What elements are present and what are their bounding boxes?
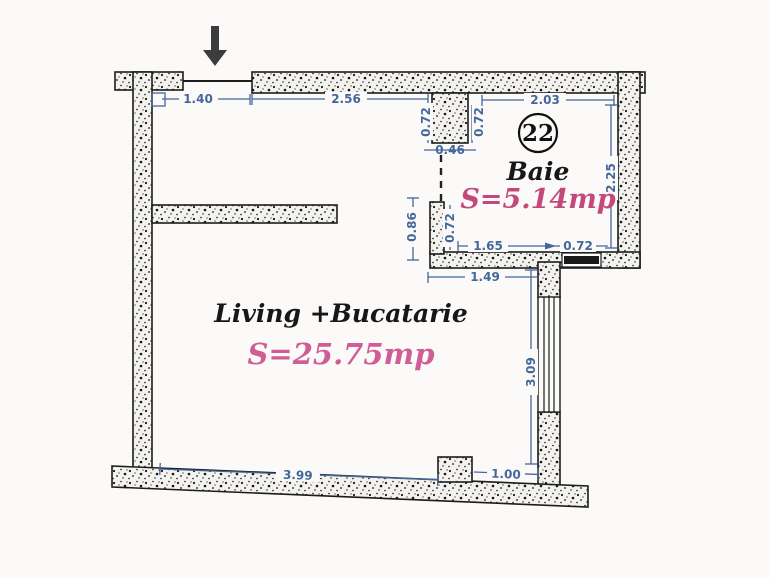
dim-label-living-top: 2.56 bbox=[331, 92, 361, 106]
dim-label-bath-wall-inner: 0.72 bbox=[443, 213, 457, 243]
dim-label-bath-entry-width: 0.46 bbox=[435, 143, 465, 157]
dim-bath-bottom: 1.65 0.72 bbox=[458, 239, 608, 253]
wall-bath-bottom bbox=[430, 252, 640, 268]
dim-bath-wall-height: 0.86 bbox=[405, 198, 419, 260]
dim-living-bottom-right: 1.00 bbox=[474, 465, 539, 482]
dim-label-bath-bottom: 1.65 bbox=[473, 239, 503, 253]
room-name-living: Living +Bucatarie bbox=[213, 299, 467, 328]
wall-bath-right bbox=[618, 72, 640, 268]
wall-left bbox=[133, 72, 152, 470]
dim-label-bath-entry-left: 0.72 bbox=[419, 107, 433, 137]
wall-top bbox=[252, 72, 645, 93]
dim-label-bath-entry-right: 0.72 bbox=[472, 107, 486, 137]
wall-pillar-bottom bbox=[438, 457, 472, 482]
dim-label-entry-door: 1.40 bbox=[183, 92, 213, 106]
dim-bath-top: 2.03 bbox=[482, 93, 614, 107]
dim-bath-right: 2.25 bbox=[604, 105, 618, 248]
room-area-living: S=25.75mp bbox=[247, 337, 434, 371]
dim-label-below-bath: 1.49 bbox=[470, 270, 500, 284]
floorplan-canvas: 1.40 2.56 0.72 0.72 0.46 2.03 2.25 bbox=[0, 0, 770, 578]
dim-bath-entry-left: 0.72 bbox=[419, 103, 433, 143]
dim-label-living-bottom: 3.99 bbox=[283, 468, 313, 483]
dim-living-top: 2.56 bbox=[252, 92, 428, 106]
dim-below-bath: 1.49 bbox=[428, 270, 538, 284]
floorplan-page: 1.40 2.56 0.72 0.72 0.46 2.03 2.25 bbox=[0, 0, 770, 578]
wall-living-right-lower bbox=[538, 412, 560, 490]
dim-bath-entry-width: 0.46 bbox=[424, 143, 476, 157]
room-number: 22 bbox=[522, 120, 554, 147]
dim-bath-wall-inner: 0.72 bbox=[443, 205, 457, 250]
wall-living-right-upper bbox=[538, 262, 560, 298]
dim-living-right: 3.09 bbox=[524, 270, 538, 464]
room-name-baie: Baie bbox=[506, 157, 570, 186]
dim-label-living-right: 3.09 bbox=[524, 357, 538, 387]
wall-partition-kitchen bbox=[152, 205, 337, 223]
living-window bbox=[538, 297, 560, 412]
dim-bath-entry-right: 0.72 bbox=[472, 103, 486, 143]
dim-entry-door: 1.40 bbox=[152, 92, 250, 106]
dim-label-bath-window: 0.72 bbox=[563, 239, 593, 253]
wall-stub-bath-entry bbox=[432, 93, 468, 143]
bath-window-glass bbox=[564, 256, 599, 264]
dim-label-living-bottom-right: 1.00 bbox=[491, 467, 521, 482]
entrance-arrow-icon bbox=[203, 26, 227, 66]
room-area-baie: S=5.14mp bbox=[460, 184, 615, 215]
dim-label-bath-wall-height: 0.86 bbox=[405, 212, 419, 242]
wall-bath-corner bbox=[430, 202, 444, 254]
dim-label-bath-top: 2.03 bbox=[530, 93, 560, 107]
